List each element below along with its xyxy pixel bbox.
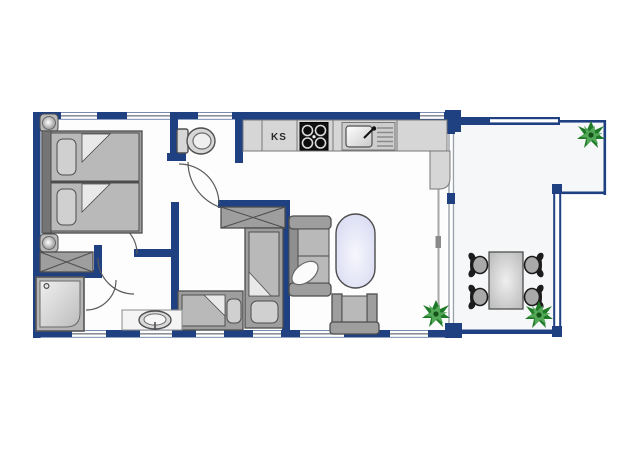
double-bed (42, 131, 142, 233)
kitchen-sink (342, 123, 395, 151)
single-bed-vertical (245, 228, 283, 328)
wardrobe (221, 207, 285, 228)
sofa-armrest (289, 283, 331, 296)
single-bed-horizontal (178, 291, 243, 330)
lamp (43, 117, 56, 130)
pillow (227, 299, 241, 323)
sofa (288, 216, 331, 296)
armchair-back (330, 322, 379, 334)
sofa-cushion (298, 229, 329, 256)
railing-post (552, 184, 562, 194)
armchair-seat (342, 296, 367, 323)
faucet (372, 126, 376, 130)
coffee-table (336, 214, 375, 288)
armchair-armrest (332, 294, 342, 325)
stove (300, 123, 328, 151)
kitchen-counter-return (430, 151, 450, 189)
railing (553, 194, 555, 328)
washbasin (122, 310, 182, 330)
floor-plan-drawing: KS (0, 0, 640, 452)
floor-plan: KS (0, 0, 640, 452)
armchair-armrest (367, 294, 377, 325)
toilet (177, 128, 215, 154)
wc-room (177, 128, 215, 154)
door-handle (436, 236, 442, 248)
armchair (330, 294, 379, 334)
wardrobe (40, 252, 93, 272)
pillow (57, 139, 76, 175)
shower (36, 277, 84, 331)
pillow (57, 189, 76, 225)
dining-table (489, 252, 523, 309)
railing (559, 194, 561, 328)
sofa-armrest (289, 216, 331, 229)
lamp (43, 237, 56, 250)
pillow (251, 301, 278, 323)
fridge-label: KS (271, 132, 287, 143)
